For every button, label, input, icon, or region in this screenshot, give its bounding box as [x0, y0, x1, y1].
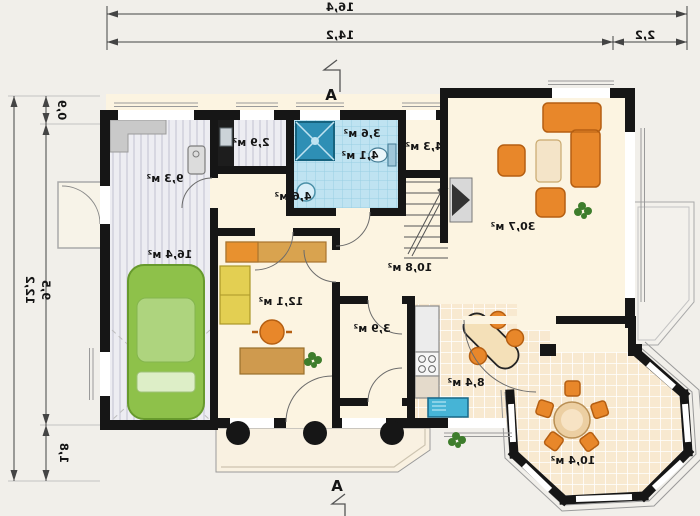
bar-stool-2 — [507, 330, 524, 347]
room-label-pantry: 3,9 м² — [353, 322, 390, 335]
kitchen-sink-icon — [428, 398, 468, 417]
boiler-icon — [188, 146, 205, 174]
stove-icon — [415, 352, 439, 376]
room-label-dining: 10,4 м² — [550, 454, 595, 467]
room-label-kitchen: 8,4 м² — [447, 376, 484, 389]
room-label-bath-b: 4,1 м² — [341, 149, 378, 162]
wc-counter — [218, 120, 234, 168]
dim-left-total: 12,2 — [23, 276, 37, 304]
living-dining-opening — [462, 316, 538, 324]
coffee-table — [536, 140, 561, 182]
fridge-counter — [415, 306, 439, 352]
floor-plan-canvas: 16,4 14,2 2,2 12,2 0,9 9,5 1,8 A A 9, — [0, 0, 700, 516]
armchair-2 — [536, 188, 565, 217]
car — [128, 265, 204, 419]
dining-chair — [565, 381, 580, 396]
dim-top-total: 16,4 — [326, 0, 354, 14]
dim-left-mid: 9,5 — [39, 280, 53, 300]
floor-plan-drawing: 16,4 14,2 2,2 12,2 0,9 9,5 1,8 A A 9, — [0, 0, 700, 516]
entrance-door-gap — [100, 186, 110, 224]
desk — [240, 348, 304, 374]
room-label-hall: 10,8 м² — [387, 261, 432, 274]
room-label-living: 30,7 м² — [490, 220, 535, 233]
dim-top-side: 2,2 — [635, 28, 655, 42]
room-label-hallway: 4,6 м² — [274, 190, 311, 203]
desk-chair — [260, 320, 284, 344]
shower-icon — [296, 122, 334, 160]
wc-sink-icon — [220, 128, 232, 146]
armchair-1 — [498, 145, 525, 176]
sofa-side — [571, 130, 600, 187]
sofa-top — [543, 103, 601, 132]
room-label-bath-a: 3,6 м² — [343, 127, 380, 140]
room-label-bedroom: 12,1 м² — [258, 295, 303, 308]
section-marker-top-label: A — [325, 86, 337, 104]
room-label-garage: 16,4 м² — [147, 248, 192, 261]
entrance-stoop — [58, 182, 102, 248]
bar-stool-3 — [470, 348, 487, 365]
dim-left-bottom: 1,8 — [57, 443, 71, 463]
section-marker-bottom-label: A — [331, 477, 343, 495]
room-label-utility: 9,3 м² — [146, 172, 183, 185]
room-label-closet: 4,3 м² — [405, 140, 442, 153]
dim-top-main: 14,2 — [326, 28, 354, 42]
room-label-wc: 2,9 м² — [232, 136, 269, 149]
dim-left-top: 0,9 — [55, 100, 69, 120]
